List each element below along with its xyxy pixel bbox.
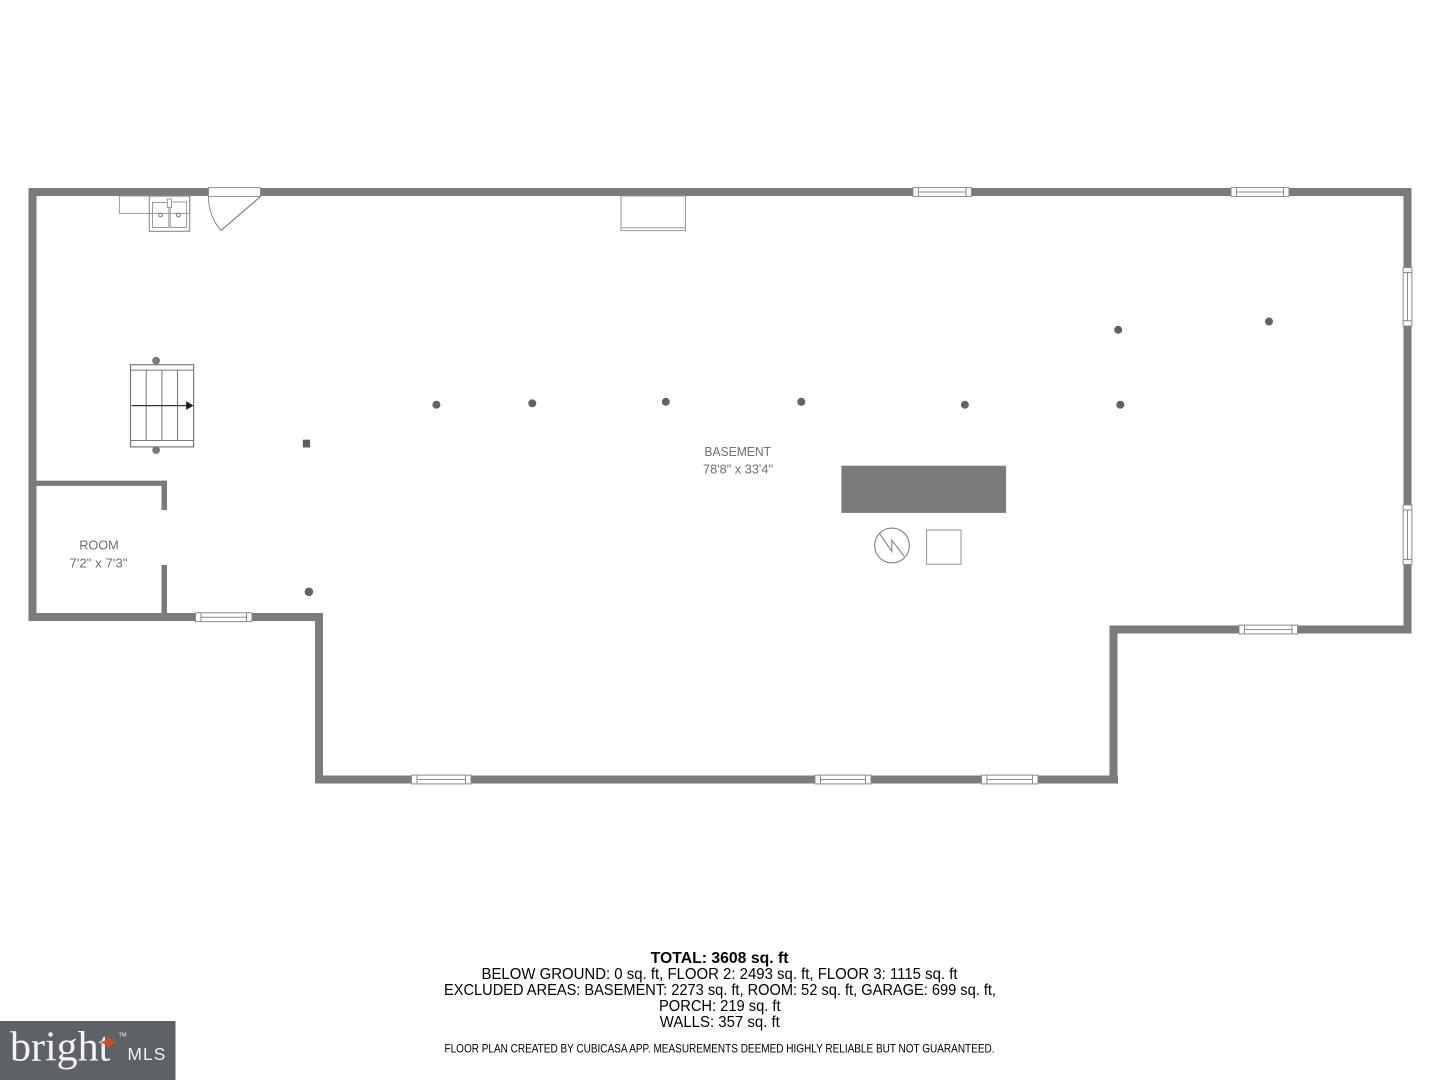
svg-text:bright: bright xyxy=(10,1025,111,1071)
svg-text:PORCH: 219 sq. ft: PORCH: 219 sq. ft xyxy=(659,998,781,1015)
svg-text:FLOOR PLAN CREATED BY CUBICASA: FLOOR PLAN CREATED BY CUBICASA APP. MEAS… xyxy=(445,1041,995,1055)
svg-text:BELOW GROUND: 0 sq. ft, FLOOR: BELOW GROUND: 0 sq. ft, FLOOR 2: 2493 sq… xyxy=(482,966,959,983)
svg-text:EXCLUDED AREAS: BASEMENT: 2273: EXCLUDED AREAS: BASEMENT: 2273 sq. ft, R… xyxy=(444,982,996,999)
svg-text:ROOM: ROOM xyxy=(79,538,119,553)
svg-text:MLS: MLS xyxy=(128,1044,167,1064)
svg-text:BASEMENT: BASEMENT xyxy=(704,444,771,459)
svg-text:WALLS: 357 sq. ft: WALLS: 357 sq. ft xyxy=(660,1014,781,1031)
svg-text:78'8" x 33'4": 78'8" x 33'4" xyxy=(703,461,773,476)
svg-text:7'2" x 7'3": 7'2" x 7'3" xyxy=(70,555,128,570)
svg-text:TM: TM xyxy=(119,1033,127,1039)
svg-text:TOTAL: 3608 sq. ft: TOTAL: 3608 sq. ft xyxy=(651,950,789,967)
